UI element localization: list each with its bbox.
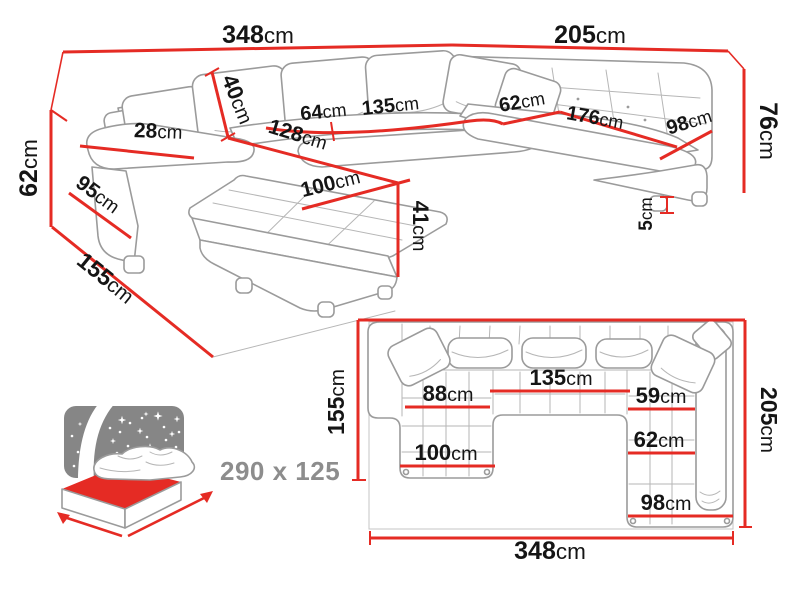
dim-plan-right-depth: 205cm — [739, 320, 782, 527]
dim-unit: cm — [451, 443, 477, 465]
dim-label: 348cm — [222, 21, 294, 49]
dim-value: 76 — [754, 102, 782, 130]
dim-unit: cm — [17, 139, 42, 169]
dim-value: 348 — [514, 537, 556, 565]
plan-foot — [485, 470, 490, 475]
dim-unit: cm — [566, 368, 592, 390]
dim-unit: cm — [408, 225, 430, 251]
sofa-dimension-diagram: 348cm 205cm 76cm 62cm 95cm 155cm 28cm — [0, 0, 800, 600]
sofa-foot — [318, 302, 334, 317]
sleeping-area-label: 290 x 125 — [220, 456, 340, 486]
dim-label: 5cm — [636, 197, 657, 230]
dim-value: 62 — [15, 169, 43, 197]
dim-label: 76cm — [754, 102, 782, 160]
dim-unit: cm — [658, 430, 684, 452]
dim-value: 205 — [554, 21, 596, 49]
dim-label: 62cm — [634, 427, 685, 452]
dim-value: 155 — [323, 396, 349, 435]
sofa-foot — [692, 192, 707, 206]
plan-foot — [631, 519, 636, 524]
plan-foot — [404, 470, 409, 475]
dim-label: 348cm — [514, 537, 586, 565]
dim-unit: cm — [519, 88, 546, 112]
dim-label: 155cm — [323, 369, 349, 435]
plan-seat-cushion — [596, 339, 652, 368]
dim-unit: cm — [326, 369, 349, 397]
dim-value: 100 — [414, 440, 451, 465]
dim-value: 88 — [423, 381, 447, 406]
dim-value: 62 — [634, 427, 658, 452]
diagram-canvas: 348cm 205cm 76cm 62cm 95cm 155cm 28cm — [0, 0, 800, 600]
dim-unit: cm — [755, 130, 780, 160]
sofa-foot — [236, 278, 252, 293]
dim-value: 98 — [641, 490, 665, 515]
dim-unit: cm — [447, 384, 473, 406]
dim-armrest-height: 62cm — [15, 110, 67, 227]
dim-label: 59cm — [636, 383, 687, 408]
dim-label: 88cm — [423, 381, 474, 406]
dim-unit: cm — [756, 425, 779, 453]
dim-value: 41 — [408, 201, 433, 225]
dim-unit: cm — [665, 493, 691, 515]
dim-unit: cm — [598, 109, 625, 133]
dim-unit: cm — [556, 539, 586, 564]
plan-seat-cushion — [448, 338, 512, 368]
dim-label: 205cm — [756, 387, 782, 453]
dim-unit: cm — [596, 23, 626, 48]
dim-value: 348 — [222, 21, 264, 49]
dim-unit: cm — [157, 122, 183, 144]
sofa-bed-icon: 290 x 125 — [57, 402, 340, 536]
dim-plan-total-width: 348cm — [370, 531, 733, 565]
sofa-foot — [124, 256, 144, 273]
dim-label: 62cm — [15, 139, 43, 197]
dim-value: 135 — [529, 365, 566, 390]
dim-value: 135 — [361, 95, 396, 120]
plan-foot — [725, 519, 730, 524]
dim-unit: cm — [321, 100, 347, 122]
dim-unit: cm — [394, 93, 420, 115]
dim-label: 41cm — [408, 201, 433, 252]
dim-label: 28cm — [134, 119, 183, 144]
dim-value: 64 — [299, 101, 324, 125]
dim-total-height: 76cm — [744, 69, 782, 193]
dim-value: 59 — [636, 383, 660, 408]
dim-label: 98cm — [641, 490, 692, 515]
dim-plan-corner-seat-depth: 59cm — [628, 383, 695, 409]
plan-seat-cushion — [522, 338, 586, 368]
dim-unit: cm — [637, 197, 656, 220]
dim-value: 205 — [756, 387, 782, 426]
dim-unit: cm — [264, 23, 294, 48]
dim-label: 135cm — [529, 365, 592, 390]
dim-label: 205cm — [554, 21, 626, 49]
sofa-foot — [378, 286, 392, 299]
dim-value: 5 — [636, 220, 657, 231]
dim-unit: cm — [660, 386, 686, 408]
dim-label: 100cm — [414, 440, 477, 465]
dim-value: 28 — [134, 119, 158, 143]
